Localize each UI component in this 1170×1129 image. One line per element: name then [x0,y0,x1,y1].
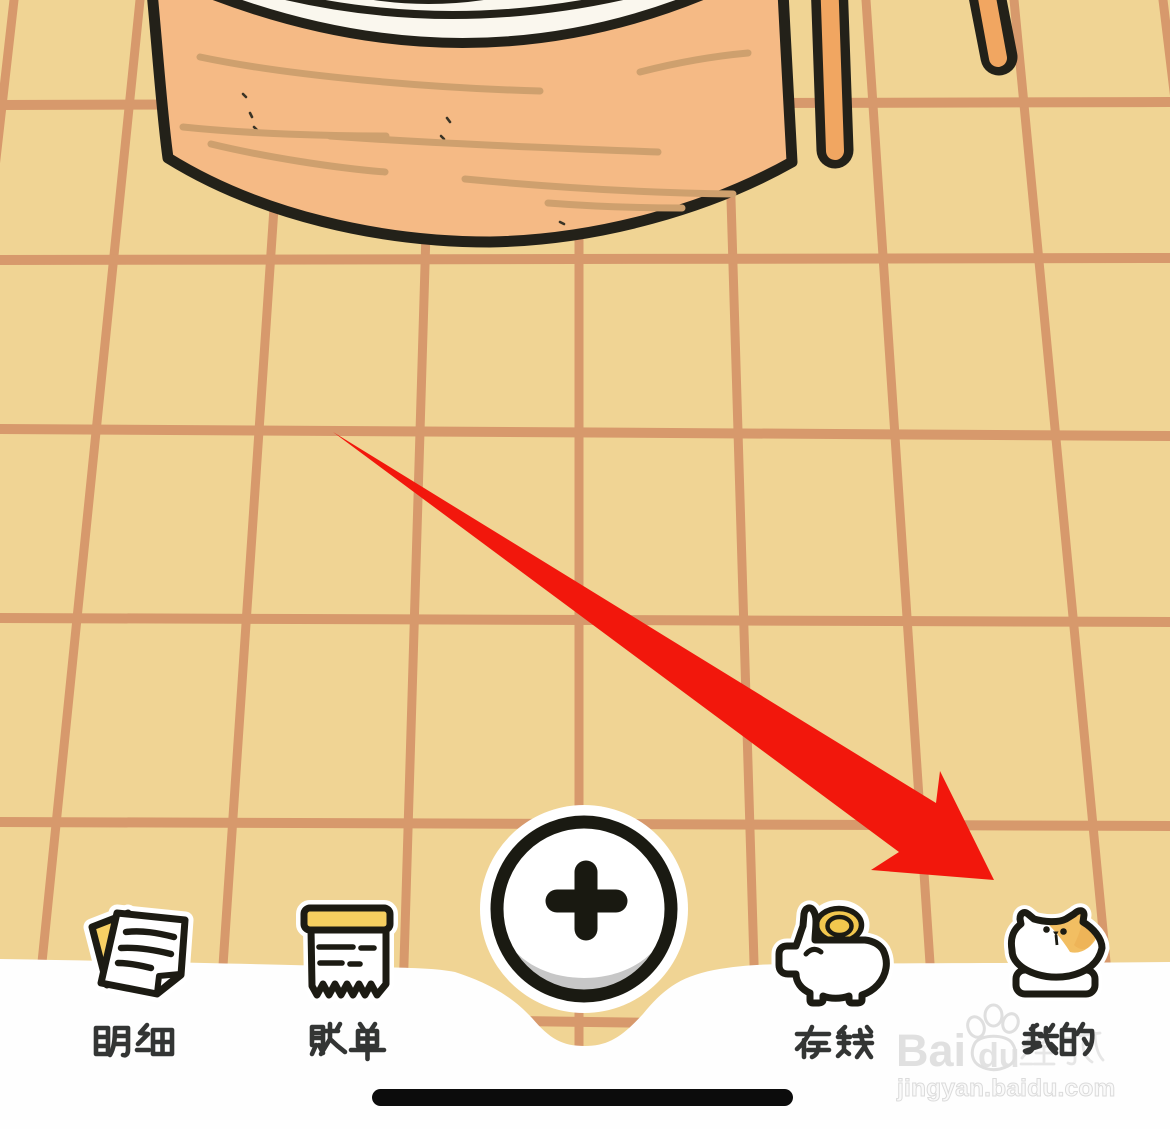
svg-text:jingyan.baidu.com: jingyan.baidu.com [896,1075,1115,1102]
svg-text:Bai: Bai [896,1025,966,1076]
